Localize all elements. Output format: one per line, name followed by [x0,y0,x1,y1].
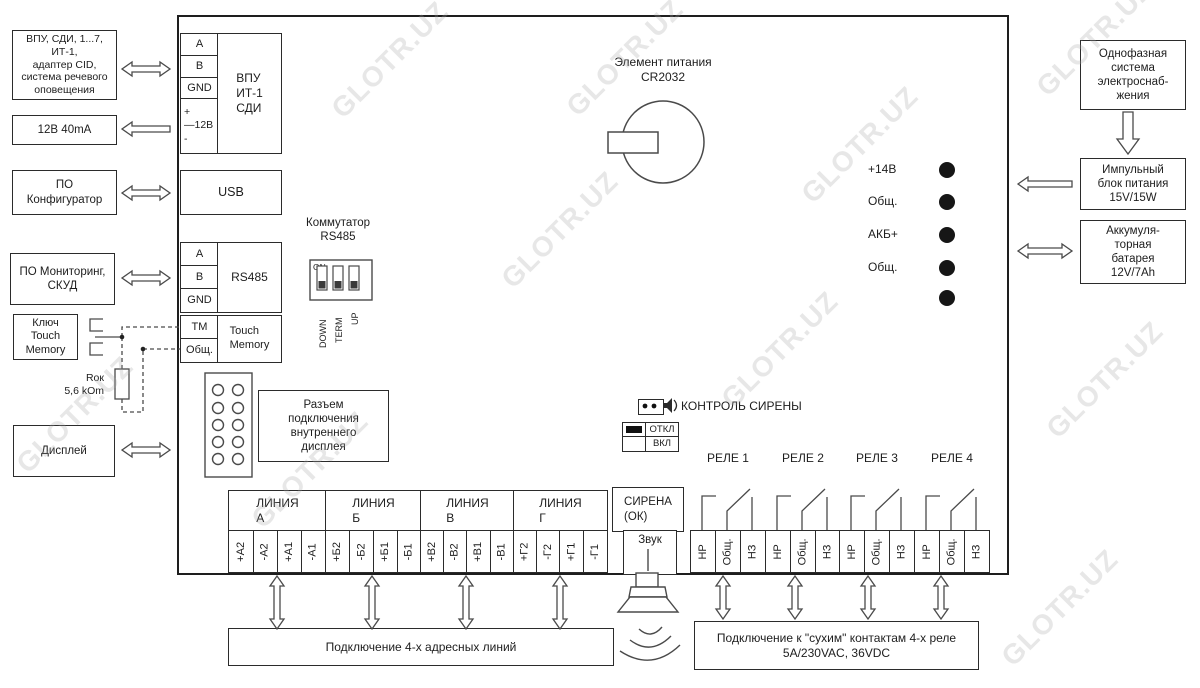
terminal-label: НР [846,544,860,559]
terminal-line-a1p: +А1 [277,530,303,573]
arrow-battery [1018,244,1072,258]
terminal-line-v1m: -В1 [490,530,515,573]
terminal-label: +В1 [472,542,486,562]
arrow-mains-down [1117,112,1139,154]
external-display-box: Дисплей [13,425,115,477]
terminal-label: +А1 [283,542,297,562]
display-connector-label: Разъем подключения внутреннего дисплея [258,390,389,462]
terminal-line-g2m: -Г2 [536,530,561,573]
terminal-relay3-no: НР [839,530,866,573]
terminal-relay2-nc: НЗ [815,530,841,573]
wiring-diagram: ВПУ, СДИ, 1...7, ИТ-1, адаптер CID, сист… [0,0,1200,688]
led-label-14v: +14В [868,162,932,177]
terminal-line-a2m: -А2 [253,530,279,573]
line-v-header: ЛИНИЯ В [420,490,515,532]
terminal-rs485-gnd: GND [180,288,219,313]
terminal-vpu-gnd: GND [180,77,219,100]
terminal-label: НР [921,544,935,559]
external-power-out-box: 12В 40mA [12,115,117,145]
led-label-gnd2: Общ. [868,260,932,275]
terminal-label: Общ. [722,538,736,565]
terminal-label: НЗ [970,544,984,559]
terminal-label: -В1 [496,543,510,560]
siren-control-title: КОНТРОЛЬ СИРЕНЫ [681,399,821,414]
terminal-line-g2p: +Г2 [513,530,538,573]
terminal-line-a1m: -А1 [301,530,327,573]
relay3-title: РЕЛЕ 3 [846,451,908,466]
terminal-label: +Г1 [565,542,579,561]
arrow-configurator [122,186,170,200]
external-mains-box: Однофазная система электроснаб- жения [1080,40,1186,110]
terminal-relay2-com: Общ. [790,530,817,573]
terminal-label: -В2 [449,543,463,560]
siren-jumper-installed [626,426,642,433]
external-configurator-box: ПО Конфигуратор [12,170,117,215]
key-dashed-tm [122,327,180,337]
terminal-siren-sound: Звук [623,530,677,575]
external-devices-box: ВПУ, СДИ, 1...7, ИТ-1, адаптер CID, сист… [12,30,117,100]
external-monitoring-box: ПО Мониторинг, СКУД [10,253,115,305]
terminal-line-g1m: -Г1 [583,530,608,573]
touch-memory-group-label: Touch Memory [217,315,282,363]
watermark: GLOTR.UZ [995,543,1124,672]
terminal-line-g1p: +Г1 [559,530,585,573]
terminal-label: -Б1 [403,543,417,560]
relay-note-box: Подключение к "сухим" контактам 4-х реле… [694,621,979,670]
junction-dot-2 [141,347,146,352]
terminal-vpu-12v: + —12В - [180,98,222,154]
terminal-label: Общ. [946,538,960,565]
arrow-line-v [459,576,473,629]
terminal-rs485-b: B [180,265,219,290]
terminal-relay1-com: Общ. [715,530,742,573]
terminal-relay1-nc: НЗ [740,530,767,573]
rs485-group-label: RS485 [217,242,282,313]
siren-jumper-box [638,399,664,415]
terminal-label: +Б2 [331,542,345,562]
lines-note-box: Подключение 4-х адресных линий [228,628,614,666]
terminal-line-a2p: +А2 [228,530,255,573]
key-dashed-resistor-loop [122,349,143,412]
arrow-relay3 [861,576,875,619]
terminal-relay4-no: НР [914,530,941,573]
terminal-label: +В2 [426,542,440,562]
arrow-psu [1018,177,1072,191]
terminal-label: -Г2 [542,544,556,560]
arrow-line-g [553,576,567,629]
terminal-label: НЗ [896,544,910,559]
sound-waves [620,627,680,660]
terminal-label: -Г1 [589,544,603,560]
arrow-relay4 [934,576,948,619]
terminal-label: -Б2 [355,543,369,560]
terminal-relay3-nc: НЗ [889,530,916,573]
siren-header: СИРЕНА (ОК) [612,487,684,532]
siren-on-label: ВКЛ [645,436,679,452]
rs485-switch-title: Коммутатор RS485 [298,216,378,245]
led-label-akb: АКБ+ [868,227,932,242]
terminal-line-v2m: -В2 [443,530,468,573]
terminal-relay3-com: Общ. [864,530,891,573]
led-label-gnd1: Общ. [868,194,932,209]
line-a-header: ЛИНИЯ А [228,490,327,532]
arrow-relay1 [716,576,730,619]
terminating-resistor [115,369,129,399]
resistor-label: Rок 5,6 kOm [50,372,104,398]
junction-dot-1 [120,335,125,340]
terminal-relay4-com: Общ. [939,530,966,573]
siren-jumper-on-cell [622,436,647,452]
terminal-vpu-a: A [180,33,219,57]
terminal-line-b1m: -Б1 [397,530,422,573]
arrow-monitoring [122,271,170,285]
terminal-tm: TM [180,315,219,340]
terminal-label: НЗ [747,544,761,559]
terminal-rs485-a: A [180,242,219,267]
terminal-tm-gnd: Общ. [180,338,219,363]
terminal-line-v2p: +В2 [420,530,445,573]
arrow-line-b [365,576,379,629]
terminal-line-v1p: +В1 [466,530,492,573]
external-psu-box: Импульный блок питания 15V/15W [1080,158,1186,210]
key-contact-brackets [90,319,103,355]
terminal-relay2-no: НР [765,530,792,573]
terminal-relay4-nc: НЗ [964,530,990,573]
terminal-line-b2m: -Б2 [349,530,375,573]
terminal-vpu-b: B [180,55,219,79]
relay4-title: РЕЛЕ 4 [921,451,983,466]
arrow-devices [122,62,170,76]
terminal-label: НР [697,544,711,559]
external-battery-box: Аккумуля- торная батарея 12V/7Ah [1080,220,1186,284]
external-touch-key-box: Ключ Touch Memory [13,314,78,360]
terminal-label: +А2 [235,542,249,562]
terminal-label: Общ. [871,538,885,565]
terminal-label: НЗ [821,544,835,559]
terminal-label: Общ. [797,538,811,565]
terminal-label: -А1 [307,543,321,560]
terminal-relay1-no: НР [690,530,717,573]
vpu-group-label: ВПУ ИТ-1 СДИ [217,33,282,154]
terminal-label: +Г2 [519,542,533,561]
arrow-relay2 [788,576,802,619]
arrow-line-a [270,576,284,629]
left-arrows [122,62,170,457]
relay1-title: РЕЛЕ 1 [697,451,759,466]
terminal-line-b1p: +Б1 [373,530,399,573]
watermark: GLOTR.UZ [1040,315,1169,444]
line-g-header: ЛИНИЯ Г [513,490,608,532]
terminal-label: НР [772,544,786,559]
terminal-line-b2p: +Б2 [325,530,351,573]
terminal-label: +Б1 [379,542,393,562]
battery-label: Элемент питания CR2032 [598,55,728,85]
arrow-power-out [122,122,170,136]
line-b-header: ЛИНИЯ Б [325,490,422,532]
arrow-display [122,443,170,457]
terminal-label: -А2 [259,543,273,560]
usb-connector: USB [180,170,282,215]
relay2-title: РЕЛЕ 2 [772,451,834,466]
